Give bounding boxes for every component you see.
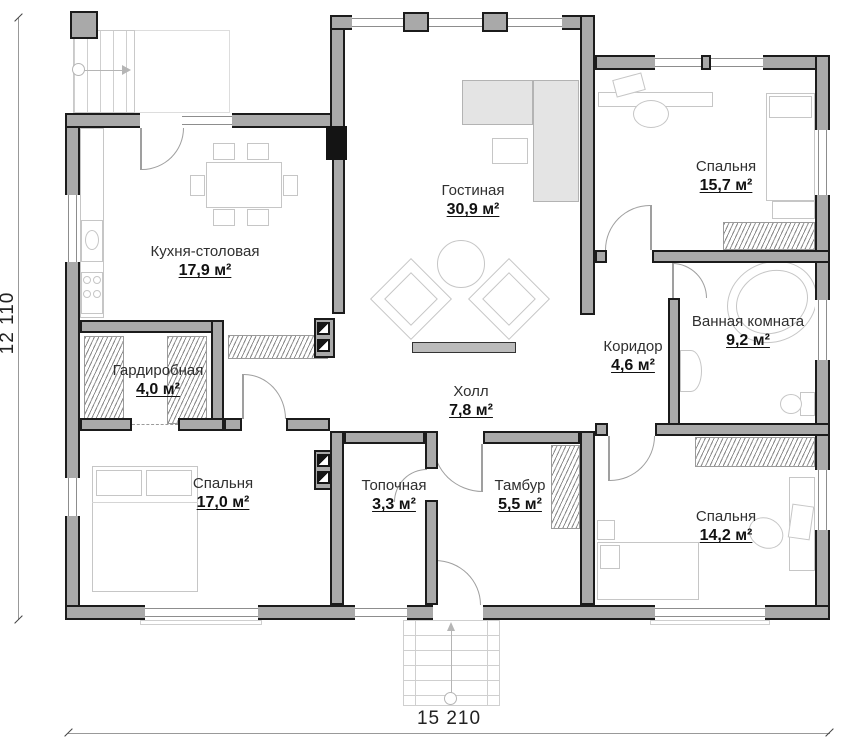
window-sill xyxy=(140,620,262,625)
dimension-width-label: 15 210 xyxy=(389,708,509,730)
room-label-bathroom: Ванная комната 9,2 м² xyxy=(692,313,804,350)
room-area: 4,6 м² xyxy=(603,356,662,375)
wall-wardrobe-right xyxy=(211,320,224,431)
vent-icon xyxy=(317,322,330,335)
room-name: Спальня xyxy=(696,158,756,176)
desk-chair xyxy=(633,100,669,128)
dining-chair xyxy=(190,175,205,196)
living-room-wall-right xyxy=(580,15,595,315)
facade-pilaster xyxy=(482,12,508,32)
burner xyxy=(83,276,91,284)
wall-boiler-left xyxy=(330,431,344,605)
room-label-boiler: Топочная 3,3 м² xyxy=(361,477,426,514)
facade-pilaster xyxy=(403,12,429,32)
room-label-bedroom-left: Спальня 17,0 м² xyxy=(193,475,253,512)
room-name: Кухня-столовая xyxy=(151,243,260,261)
washbasin xyxy=(680,350,702,392)
room-label-kitchen: Кухня-столовая 17,9 м² xyxy=(151,243,260,280)
room-area: 30,9 м² xyxy=(442,200,505,219)
pillow xyxy=(769,96,812,118)
window xyxy=(182,113,232,128)
window xyxy=(815,300,830,360)
wall-bathroom-bedroom3 xyxy=(655,423,830,436)
dining-chair xyxy=(247,143,269,160)
wall-boiler-top xyxy=(344,431,425,444)
wall-bedroom2-top xyxy=(286,418,330,431)
porch-rail-left xyxy=(415,620,416,706)
room-label-bedroom-top-right: Спальня 15,7 м² xyxy=(696,158,756,195)
wall-corridor-bathroom xyxy=(668,298,680,433)
wall-bathroom-bedroom3 xyxy=(595,423,608,436)
door-arc xyxy=(142,128,184,170)
wall-bedroom1-bottom xyxy=(652,250,830,263)
vestibule-closet xyxy=(551,445,580,529)
hall-closet xyxy=(228,335,328,359)
door-arc xyxy=(433,444,483,492)
room-area: 9,2 м² xyxy=(692,331,804,350)
sofa-section xyxy=(533,80,579,202)
room-area: 17,9 м² xyxy=(151,261,260,280)
stairs-start-marker xyxy=(72,63,85,76)
window xyxy=(65,478,80,516)
porch-arrow-icon xyxy=(447,622,455,631)
vent-icon xyxy=(317,454,330,467)
toilet-bowl xyxy=(780,394,802,414)
door-arc xyxy=(610,436,655,481)
fireplace xyxy=(326,126,347,160)
room-label-bedroom-bottom-right: Спальня 14,2 м² xyxy=(696,508,756,545)
dining-chair xyxy=(283,175,298,196)
dining-table xyxy=(206,162,282,208)
room-name: Тамбур xyxy=(495,477,546,495)
window xyxy=(655,605,765,620)
window-mullion xyxy=(701,55,711,70)
room-area: 17,0 м² xyxy=(193,493,253,512)
room-name: Спальня xyxy=(193,475,253,493)
porch-rail-right xyxy=(487,620,488,706)
window xyxy=(429,15,482,30)
wardrobe-closet xyxy=(695,437,815,467)
wall-vestibule-right xyxy=(580,431,595,605)
window xyxy=(65,195,80,262)
room-label-vestibule: Тамбур 5,5 м² xyxy=(495,477,546,514)
room-area: 15,7 м² xyxy=(696,176,756,195)
wall-boiler-right xyxy=(425,500,438,605)
burner xyxy=(93,276,101,284)
door-opening xyxy=(433,605,483,620)
door-arc xyxy=(605,205,650,250)
dining-chair xyxy=(213,209,235,226)
door-arc xyxy=(244,374,286,419)
wardrobe-opening xyxy=(132,424,178,426)
room-area: 4,0 м² xyxy=(113,380,204,399)
room-label-hall: Холл 7,8 м² xyxy=(449,383,493,420)
pillow xyxy=(146,470,192,496)
room-name: Гардиробная xyxy=(113,362,204,380)
sofa-section xyxy=(462,80,533,125)
door-opening xyxy=(140,113,182,128)
dining-chair xyxy=(247,209,269,226)
window xyxy=(352,15,403,30)
window xyxy=(815,470,830,530)
coffee-table xyxy=(492,138,528,164)
window xyxy=(815,130,830,195)
room-name: Холл xyxy=(449,383,493,401)
door-leaf xyxy=(650,205,652,250)
nightstand xyxy=(772,201,815,219)
toilet-tank xyxy=(800,392,815,416)
dimension-height-label: 12 110 xyxy=(0,263,19,383)
vent-icon xyxy=(317,339,330,352)
stairs-arrow-icon xyxy=(122,65,131,75)
floor-plan: Гостиная 30,9 м² Кухня-столовая 17,9 м² … xyxy=(0,0,850,746)
room-name: Топочная xyxy=(361,477,426,495)
pillow xyxy=(600,545,620,569)
dimension-line-bottom xyxy=(68,733,830,734)
computer xyxy=(788,504,815,541)
stairs-direction-line xyxy=(80,70,124,71)
room-name: Гостиная xyxy=(442,182,505,200)
room-label-wardrobe: Гардиробная 4,0 м² xyxy=(113,362,204,399)
window xyxy=(355,605,407,620)
room-area: 14,2 м² xyxy=(696,526,756,545)
room-area: 3,3 м² xyxy=(361,495,426,514)
wall-bedroom2-top xyxy=(224,418,242,431)
burner xyxy=(83,290,91,298)
room-name: Коридор xyxy=(603,338,662,356)
window xyxy=(508,15,562,30)
porch-column xyxy=(70,11,98,39)
room-area: 5,5 м² xyxy=(495,495,546,514)
wall-wardrobe-top xyxy=(80,320,224,333)
room-label-corridor: Коридор 4,6 м² xyxy=(603,338,662,375)
porch-direction-line xyxy=(451,630,452,694)
tv-console xyxy=(412,342,516,353)
vent-icon xyxy=(317,471,330,484)
nightstand xyxy=(597,520,615,540)
armchair-seat xyxy=(482,272,536,326)
living-room-wall-left xyxy=(330,15,345,128)
door-arc xyxy=(435,560,481,605)
window-sill xyxy=(650,620,770,625)
wall-bedroom1-bottom xyxy=(595,250,607,263)
dining-chair xyxy=(213,143,235,160)
armchair-seat xyxy=(384,272,438,326)
room-label-living: Гостиная 30,9 м² xyxy=(442,182,505,219)
window xyxy=(145,605,258,620)
door-arc xyxy=(672,263,707,298)
room-area: 7,8 м² xyxy=(449,401,493,420)
wardrobe-closet xyxy=(723,222,815,250)
blanket-line xyxy=(92,502,198,503)
burner xyxy=(93,290,101,298)
sink-basin xyxy=(85,230,99,250)
wall-vestibule-top xyxy=(483,431,580,444)
room-name: Спальня xyxy=(696,508,756,526)
wall-wardrobe-bottom xyxy=(80,418,132,431)
wall-boiler-right xyxy=(425,431,438,469)
exterior-wall-left xyxy=(65,113,80,620)
wall-wardrobe-bottom xyxy=(178,418,224,431)
room-name: Ванная комната xyxy=(692,313,804,331)
pillow xyxy=(96,470,142,496)
porch-start-marker xyxy=(444,692,457,705)
round-table xyxy=(437,240,485,288)
